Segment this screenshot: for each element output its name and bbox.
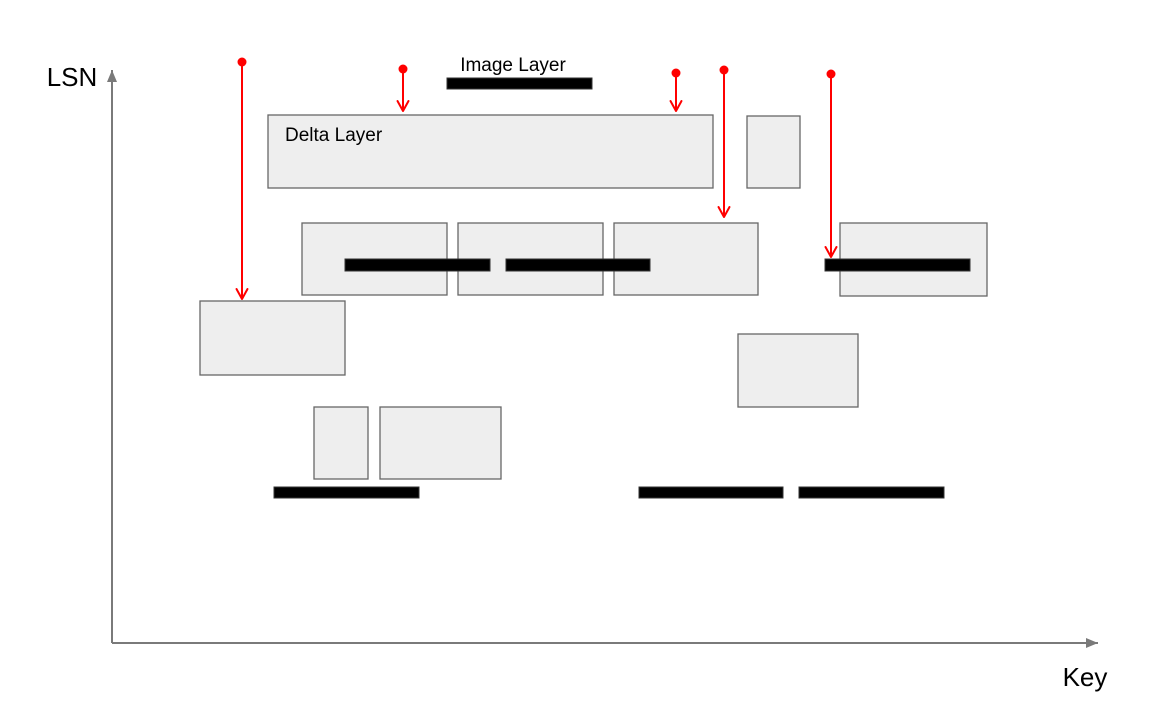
y-axis-label: LSN: [47, 62, 98, 92]
diagram-canvas: LSN Key Image Layer Delta Layer: [0, 0, 1175, 704]
delta-layer-small-a: [314, 407, 368, 479]
image-layer-bar: [799, 487, 944, 498]
delta-layer-label: Delta Layer: [285, 125, 383, 146]
read-arrow: [399, 65, 408, 112]
read-arrow: [827, 70, 836, 258]
image-layer-label: Image Layer: [460, 55, 566, 76]
delta-layer-small-top: [747, 116, 800, 188]
read-arrow: [672, 69, 681, 112]
image-layer-bar: [639, 487, 783, 498]
image-layer-bar: [345, 259, 490, 271]
image-layer-legend-bar: [447, 78, 592, 89]
read-arrow: [238, 58, 247, 300]
x-axis-label: Key: [1063, 662, 1108, 692]
delta-layer-lower-right: [738, 334, 858, 407]
image-layer-bar: [825, 259, 970, 271]
layer-map-diagram: LSN Key Image Layer Delta Layer: [0, 0, 1175, 704]
image-layer-bar: [274, 487, 419, 498]
delta-layer-small-b: [380, 407, 501, 479]
read-arrow: [720, 66, 729, 218]
delta-layer-boxes: [200, 115, 987, 479]
delta-layer-left: [200, 301, 345, 375]
image-layer-bar: [506, 259, 650, 271]
